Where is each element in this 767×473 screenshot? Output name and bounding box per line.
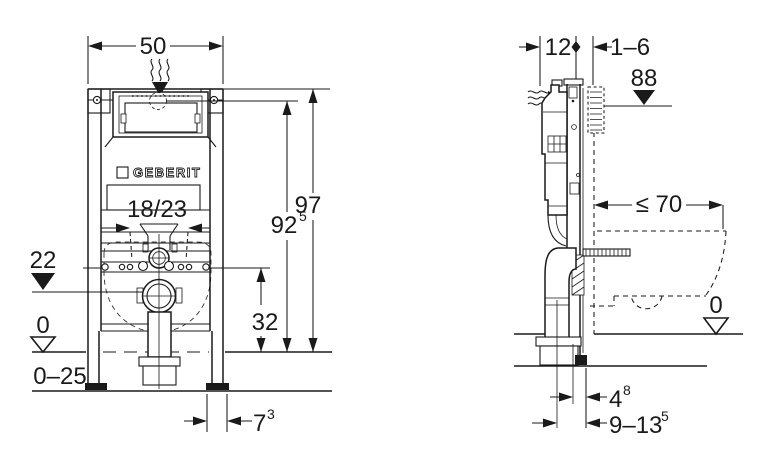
rail-foot xyxy=(575,355,587,365)
dimension-diamond-icon xyxy=(572,41,581,53)
frame-width-label: 50 xyxy=(140,33,167,60)
fixing-spacing-label: 18/23 xyxy=(127,196,187,223)
floor-depth-range-label: 0–25 xyxy=(33,363,86,390)
drain-pipe-front xyxy=(139,312,180,385)
technical-drawing-canvas: 50 xyxy=(0,0,767,473)
floor-level-label: 0 xyxy=(36,312,49,339)
concealed-cistern-side xyxy=(542,80,567,246)
frame-depth-label: 12 xyxy=(545,34,572,61)
rail-wall-offset-label: 4 xyxy=(609,386,622,413)
threaded-rod xyxy=(583,249,630,256)
level-marker-88: 88 xyxy=(602,65,672,106)
level-arrow-open-icon xyxy=(31,337,55,352)
wall-finish-range-label: 1–6 xyxy=(610,34,650,61)
dimension-supply-height: 92 5 xyxy=(166,101,307,352)
level-marker-22: 22 xyxy=(30,247,143,292)
dimension-bowl-depth: ≤ 70 xyxy=(594,191,723,229)
actuator-level-label: 88 xyxy=(631,65,658,92)
front-view: 50 xyxy=(30,33,332,437)
wc-bowl-outline-side xyxy=(590,231,726,309)
dimension-frame-width: 50 xyxy=(88,33,223,84)
bowl-depth-max-label: ≤ 70 xyxy=(636,191,683,218)
water-supply-icon xyxy=(151,59,169,96)
dimension-foot-offset: 7 3 xyxy=(184,394,275,437)
floor-level-label: 0 xyxy=(709,292,722,319)
side-view: 12 1–6 88 xyxy=(514,34,743,439)
installation-frame-drawing: 50 xyxy=(0,0,767,473)
frame-height-label: 97 xyxy=(295,192,322,219)
level-marker-0-front: 0 xyxy=(31,312,55,352)
level-arrow-filled-icon xyxy=(633,90,655,105)
dimension-fixing-height: 32 xyxy=(252,268,279,352)
fixing-height-label: 32 xyxy=(252,309,279,336)
level-marker-0-side: 0 xyxy=(704,292,728,334)
level-arrow-open-icon xyxy=(704,318,728,334)
outlet-wall-range-label: 9–13 xyxy=(609,412,662,439)
frame-foot-left xyxy=(85,383,107,390)
foot-offset-label: 7 xyxy=(253,410,266,437)
dimension-rail-wall-offset: 4 8 xyxy=(550,382,631,413)
rail-wall-offset-sup: 8 xyxy=(623,382,631,398)
dimension-outlet-wall-range: 9–13 5 xyxy=(532,408,669,439)
outlet-level-label: 22 xyxy=(30,247,57,274)
actuator-plate xyxy=(588,87,604,133)
brand-label: GEBERIT xyxy=(133,165,201,180)
foot-offset-sup: 3 xyxy=(267,406,275,422)
outlet-wall-range-sup: 5 xyxy=(661,408,669,424)
frame-foot-right xyxy=(206,383,229,390)
brand-logo: GEBERIT xyxy=(117,165,201,180)
supply-height-label: 92 xyxy=(271,212,298,239)
level-arrow-filled-icon xyxy=(31,273,55,290)
